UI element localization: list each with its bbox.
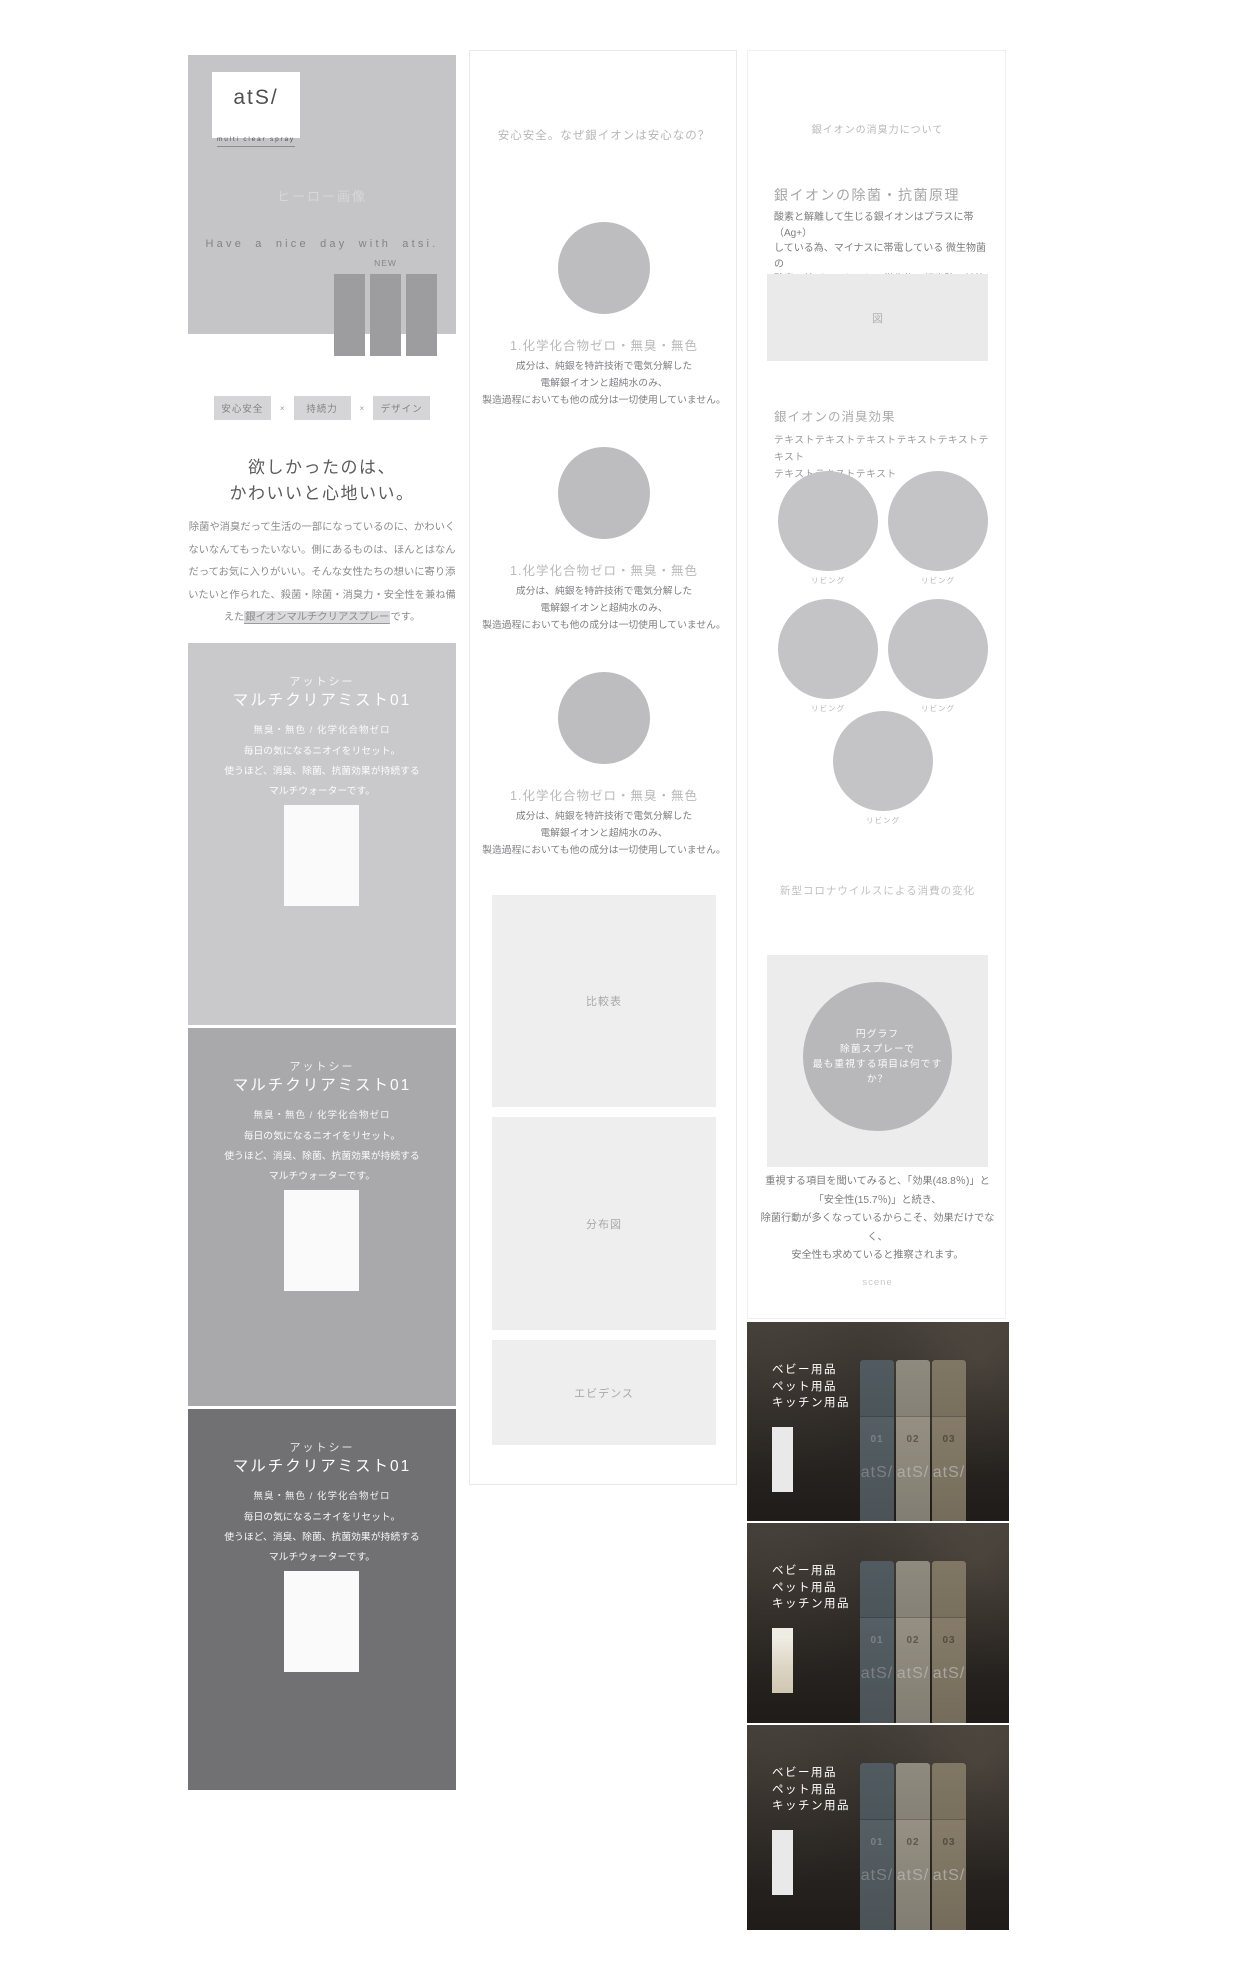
deodorize-page-title: 銀イオンの消臭力について	[748, 121, 1007, 136]
photo-section-2[interactable]: 01atS/ 02atS/ 03atS/ ベビー用品 ペット用品 キッチン用品	[747, 1523, 1009, 1723]
brand-logo: atS/ multi clear spray	[212, 72, 300, 138]
scene-label: リビング	[888, 703, 988, 714]
product-card-light[interactable]: アットシー マルチクリアミスト01 無臭・無色 / 化学化合物ゼロ 毎日の気にな…	[188, 643, 456, 1025]
concept-line-highlighted: えた銀イオンマルチクリアスプレーです。	[188, 607, 456, 630]
feature-tag-row: 安心安全 × 持続力 × デザイン	[188, 396, 456, 420]
product-name: マルチクリアミスト01	[188, 688, 456, 710]
concept-paragraph: 除菌や消臭だって生活の一部になっているのに、かわいく ないなんてもったいない。側…	[188, 517, 456, 630]
feature-block-3: 1.化学化合物ゼロ・無臭・無色 成分は、純銀を特許技術で電気分解した 電解銀イオ…	[470, 672, 738, 862]
deodorize-text-line: テキストテキストテキストテキストテキストテキスト	[774, 432, 989, 466]
product-spec: 無臭・無色 / 化学化合物ゼロ	[188, 1107, 456, 1121]
feature-desc-line: 製造過程においても他の成分は一切使用していません。	[470, 617, 738, 634]
placeholder-label: エビデンス	[574, 1385, 634, 1401]
product-desc-line: マルチウォーターです。	[188, 1548, 456, 1568]
category-pet[interactable]: ペット用品	[772, 1580, 850, 1597]
comparison-table-placeholder: 比較表	[492, 895, 716, 1107]
category-pet[interactable]: ペット用品	[772, 1782, 850, 1799]
product-desc-line: 毎日の気になるニオイをリセット。	[188, 1508, 456, 1528]
feature-circle-placeholder	[558, 672, 650, 764]
safety-page-title: 安心安全。なぜ銀イオンは安心なの？	[470, 127, 738, 143]
tag-design[interactable]: デザイン	[373, 396, 430, 420]
hero-tagline: Have a nice day with atsi.	[188, 238, 456, 250]
photo-dark-overlay	[747, 1523, 1009, 1723]
photo-dark-overlay	[747, 1725, 1009, 1930]
category-pet[interactable]: ペット用品	[772, 1379, 850, 1396]
product-description: 毎日の気になるニオイをリセット。 使うほど、消臭、除菌、抗菌効果が持続する マル…	[188, 1508, 456, 1568]
feature-desc-line: 製造過程においても他の成分は一切使用していません。	[470, 392, 738, 409]
product-description: 毎日の気になるニオイをリセット。 使うほど、消臭、除菌、抗菌効果が持続する マル…	[188, 1127, 456, 1187]
placeholder-label: 分布図	[586, 1216, 622, 1232]
product-spec: 無臭・無色 / 化学化合物ゼロ	[188, 1488, 456, 1502]
figure-label: 図	[872, 310, 883, 326]
product-card-dark[interactable]: アットシー マルチクリアミスト01 無臭・無色 / 化学化合物ゼロ 毎日の気にな…	[188, 1409, 456, 1790]
tag-separator: ×	[360, 404, 365, 413]
feature-circle-placeholder	[558, 447, 650, 539]
product-desc-line: 使うほど、消臭、除菌、抗菌効果が持続する	[188, 1147, 456, 1167]
artboard-home-page: atS/ multi clear spray ヒーロー画像 Have a nic…	[188, 55, 456, 1790]
category-list: ベビー用品 ペット用品 キッチン用品	[772, 1765, 850, 1815]
category-list: ベビー用品 ペット用品 キッチン用品	[772, 1362, 850, 1412]
figure-placeholder: 図	[767, 274, 988, 361]
scene-footer-label: scene	[748, 1277, 1007, 1288]
product-thumb-bar-2[interactable]	[370, 274, 401, 356]
tag-durability[interactable]: 持続力	[294, 396, 351, 420]
feature-description: 成分は、純銀を特許技術で電気分解した 電解銀イオンと超純水のみ、 製造過程におい…	[470, 583, 738, 634]
scene-label: リビング	[833, 815, 933, 826]
category-kitchen[interactable]: キッチン用品	[772, 1798, 850, 1815]
product-desc-line: 使うほど、消臭、除菌、抗菌効果が持続する	[188, 1528, 456, 1548]
feature-description: 成分は、純銀を特許技術で電気分解した 電解銀イオンと超純水のみ、 製造過程におい…	[470, 358, 738, 409]
principle-line: している為、マイナスに帯電している 微生物菌の	[774, 241, 986, 272]
concept-line: ないなんてもったいない。側にあるものは、ほんとはなん	[188, 540, 456, 563]
product-thumb-bar-1[interactable]	[334, 274, 365, 356]
product-brand: アットシー	[188, 673, 456, 689]
pie-chart-circle: 円グラフ 除菌スプレーで 最も重視する項目は何ですか？	[803, 982, 952, 1131]
survey-line: 「安全性(15.7％)」と続き、	[756, 1192, 999, 1211]
scene-circle-placeholder	[888, 471, 988, 571]
pie-label-line: 最も重視する項目は何ですか？	[803, 1057, 952, 1087]
feature-desc-line: 成分は、純銀を特許技術で電気分解した	[470, 583, 738, 600]
evidence-placeholder: エビデンス	[492, 1340, 716, 1445]
survey-line: 重視する項目を聞いてみると、「効果(48.8％)」と	[756, 1173, 999, 1192]
feature-desc-line: 電解銀イオンと超純水のみ、	[470, 825, 738, 842]
scene-circle-placeholder	[778, 599, 878, 699]
feature-heading: 1.化学化合物ゼロ・無臭・無色	[470, 560, 738, 579]
feature-desc-line: 成分は、純銀を特許技術で電気分解した	[470, 808, 738, 825]
placeholder-label: 比較表	[586, 993, 622, 1009]
survey-line: 除菌行動が多くなっているからこそ、効果だけでなく、	[756, 1210, 999, 1247]
concept-heading: 欲しかったのは、 かわいいと心地いい。	[188, 455, 456, 507]
product-image-placeholder	[284, 805, 359, 906]
tag-safety[interactable]: 安心安全	[214, 396, 271, 420]
concept-line: だってお気に入りがいい。そんな女性たちの想いに寄り添	[188, 562, 456, 585]
artboard-deodorize-page: 銀イオンの消臭力について 銀イオンの除菌・抗菌原理 酸素と解離して生じる銀イオン…	[747, 50, 1006, 1319]
product-name: マルチクリアミスト01	[188, 1454, 456, 1476]
new-badge: NEW	[370, 258, 401, 268]
product-desc-line: 毎日の気になるニオイをリセット。	[188, 742, 456, 762]
feature-desc-line: 電解銀イオンと超純水のみ、	[470, 600, 738, 617]
concept-line-suffix: です。	[390, 612, 420, 623]
product-image-placeholder	[284, 1571, 359, 1672]
feature-block-2: 1.化学化合物ゼロ・無臭・無色 成分は、純銀を特許技術で電気分解した 電解銀イオ…	[470, 447, 738, 637]
feature-desc-line: 電解銀イオンと超純水のみ、	[470, 375, 738, 392]
product-name: マルチクリアミスト01	[188, 1073, 456, 1095]
logo-subtitle: multi clear spray	[217, 136, 295, 147]
category-baby[interactable]: ベビー用品	[772, 1362, 850, 1379]
logo-wordmark: atS/	[212, 86, 300, 110]
product-desc-line: 使うほど、消臭、除菌、抗菌効果が持続する	[188, 762, 456, 782]
pie-label-line: 円グラフ	[856, 1027, 899, 1042]
product-description: 毎日の気になるニオイをリセット。 使うほど、消臭、除菌、抗菌効果が持続する マル…	[188, 742, 456, 802]
category-list: ベビー用品 ペット用品 キッチン用品	[772, 1563, 850, 1613]
concept-heading-line2: かわいいと心地いい。	[230, 484, 415, 503]
survey-line: 安全性も求めていると推察されます。	[756, 1247, 999, 1266]
scene-circle-placeholder	[833, 711, 933, 811]
scene-circle-placeholder	[778, 471, 878, 571]
product-name-highlight: 銀イオンマルチクリアスプレー	[244, 611, 390, 624]
pie-label-line: 除菌スプレーで	[840, 1042, 915, 1057]
artboard-safety-page: 安心安全。なぜ銀イオンは安心なの？ 1.化学化合物ゼロ・無臭・無色 成分は、純銀…	[469, 50, 737, 1485]
category-kitchen[interactable]: キッチン用品	[772, 1596, 850, 1613]
category-baby[interactable]: ベビー用品	[772, 1563, 850, 1580]
product-desc-line: マルチウォーターです。	[188, 1167, 456, 1187]
product-card-medium[interactable]: アットシー マルチクリアミスト01 無臭・無色 / 化学化合物ゼロ 毎日の気にな…	[188, 1028, 456, 1406]
product-desc-line: マルチウォーターです。	[188, 782, 456, 802]
photo-section-1[interactable]: 01atS/ 02atS/ 03atS/ ベビー用品 ペット用品 キッチン用品	[747, 1322, 1009, 1521]
product-thumb-bar-3[interactable]	[406, 274, 437, 356]
principle-heading: 銀イオンの除菌・抗菌原理	[774, 185, 960, 205]
product-brand: アットシー	[188, 1439, 456, 1455]
mini-image-placeholder	[772, 1830, 793, 1895]
mini-product-thumbnail	[772, 1628, 793, 1693]
category-kitchen[interactable]: キッチン用品	[772, 1395, 850, 1412]
principle-line: 酸素と解離して生じる銀イオンはプラスに帯（Ag+）	[774, 210, 986, 241]
feature-heading: 1.化学化合物ゼロ・無臭・無色	[470, 335, 738, 354]
scene-label: リビング	[778, 575, 878, 586]
scene-label: リビング	[888, 575, 988, 586]
mini-image-placeholder	[772, 1427, 793, 1492]
survey-section-title: 新型コロナウイルスによる消費の変化	[748, 883, 1007, 898]
survey-paragraph: 重視する項目を聞いてみると、「効果(48.8％)」と 「安全性(15.7％)」と…	[756, 1173, 999, 1266]
feature-block-1: 1.化学化合物ゼロ・無臭・無色 成分は、純銀を特許技術で電気分解した 電解銀イオ…	[470, 222, 738, 412]
product-brand: アットシー	[188, 1058, 456, 1074]
feature-circle-placeholder	[558, 222, 650, 314]
product-image-placeholder	[284, 1190, 359, 1291]
scene-label: リビング	[778, 703, 878, 714]
feature-heading: 1.化学化合物ゼロ・無臭・無色	[470, 785, 738, 804]
photo-section-3[interactable]: 01atS/ 02atS/ 03atS/ ベビー用品 ペット用品 キッチン用品	[747, 1725, 1009, 1930]
hero-placeholder-label: ヒーロー画像	[188, 186, 456, 205]
deodorize-effect-heading: 銀イオンの消臭効果	[774, 406, 896, 425]
tag-separator: ×	[280, 404, 285, 413]
scene-circle-placeholder	[888, 599, 988, 699]
concept-line: いたいと作られた、殺菌・除菌・消臭力・安全性を兼ね備	[188, 585, 456, 608]
product-spec: 無臭・無色 / 化学化合物ゼロ	[188, 722, 456, 736]
concept-heading-line1: 欲しかったのは、	[248, 458, 396, 477]
concept-line: 除菌や消臭だって生活の一部になっているのに、かわいく	[188, 517, 456, 540]
concept-line-prefix: えた	[224, 612, 245, 623]
feature-description: 成分は、純銀を特許技術で電気分解した 電解銀イオンと超純水のみ、 製造過程におい…	[470, 808, 738, 859]
distribution-chart-placeholder: 分布図	[492, 1117, 716, 1330]
feature-desc-line: 成分は、純銀を特許技術で電気分解した	[470, 358, 738, 375]
pie-chart-placeholder: 円グラフ 除菌スプレーで 最も重視する項目は何ですか？	[767, 955, 988, 1167]
category-baby[interactable]: ベビー用品	[772, 1765, 850, 1782]
product-desc-line: 毎日の気になるニオイをリセット。	[188, 1127, 456, 1147]
feature-desc-line: 製造過程においても他の成分は一切使用していません。	[470, 842, 738, 859]
